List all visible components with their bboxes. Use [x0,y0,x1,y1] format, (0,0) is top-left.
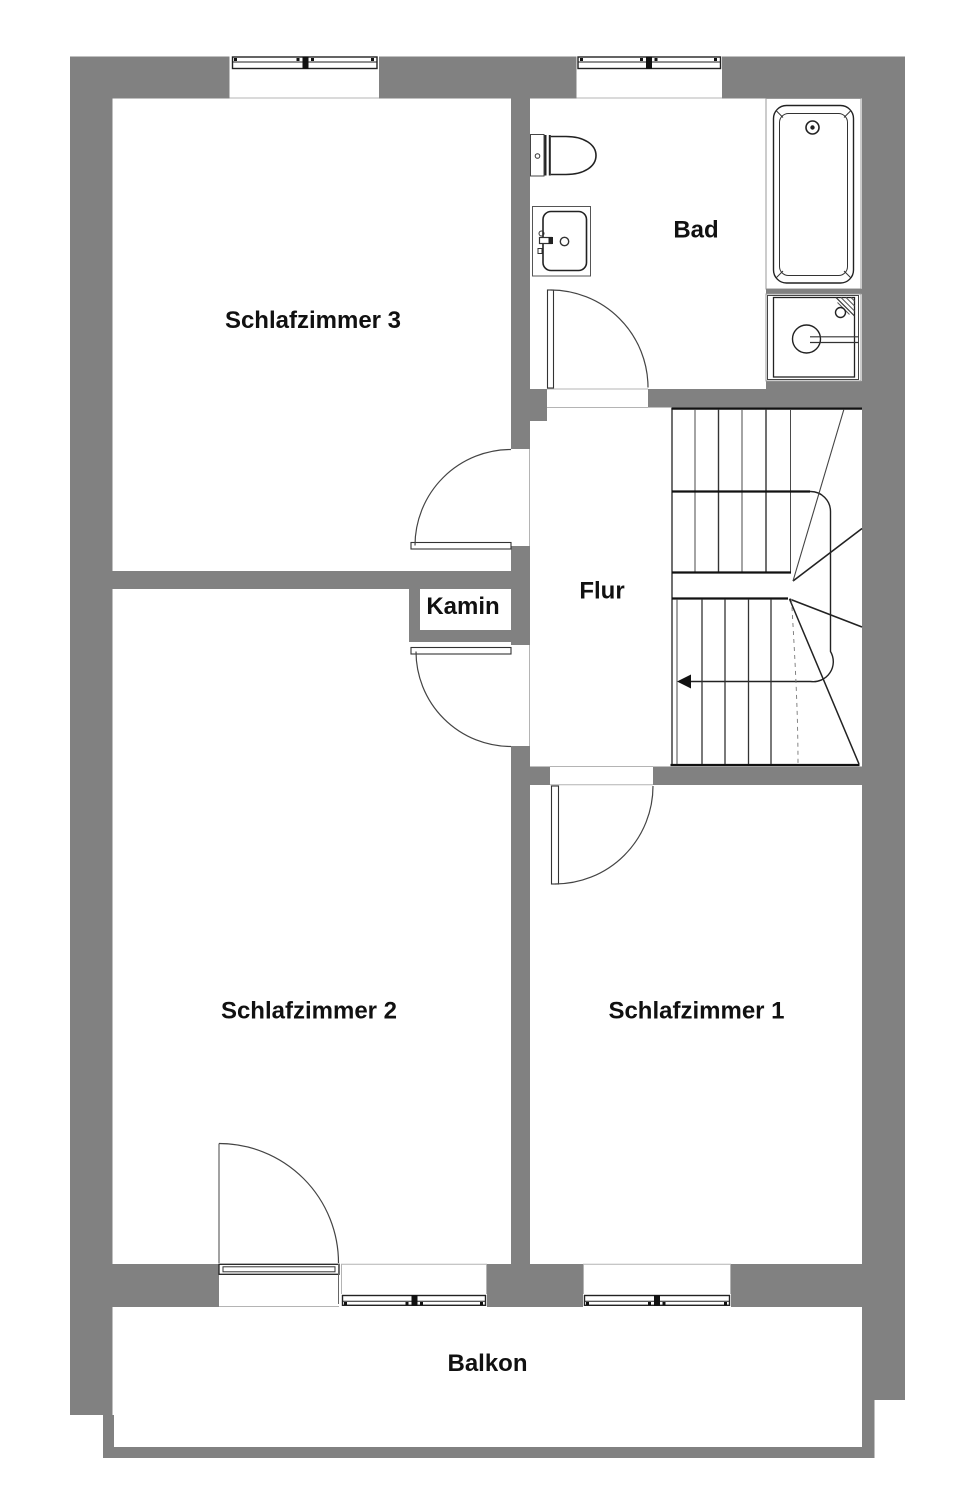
svg-text:Kamin: Kamin [426,593,499,620]
svg-text:Schlafzimmer 3: Schlafzimmer 3 [225,307,401,334]
svg-text:Schlafzimmer 2: Schlafzimmer 2 [221,998,397,1025]
svg-text:Flur: Flur [579,578,624,605]
svg-text:Schlafzimmer 1: Schlafzimmer 1 [608,998,784,1025]
svg-text:Bad: Bad [673,217,718,244]
svg-text:Balkon: Balkon [447,1350,527,1377]
